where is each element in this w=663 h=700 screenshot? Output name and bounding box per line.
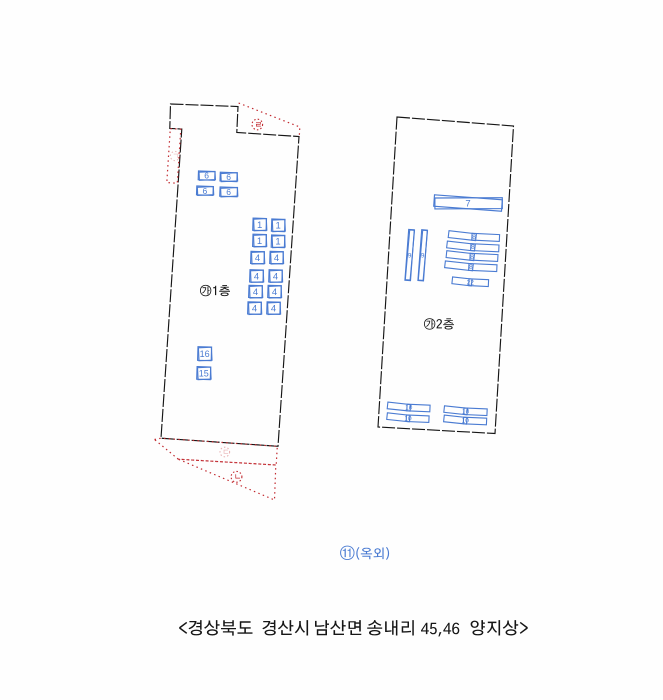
svg-text:1: 1 bbox=[276, 221, 281, 232]
svg-text:22: 22 bbox=[467, 279, 475, 286]
svg-text:6: 6 bbox=[204, 171, 209, 181]
svg-text:8: 8 bbox=[471, 244, 475, 251]
svg-text:9: 9 bbox=[408, 252, 412, 259]
svg-text:4: 4 bbox=[253, 287, 258, 298]
svg-text:4: 4 bbox=[272, 287, 277, 298]
svg-text:1: 1 bbox=[257, 236, 262, 247]
svg-text:8: 8 bbox=[469, 264, 473, 271]
svg-text:8: 8 bbox=[472, 234, 476, 241]
svg-text:6: 6 bbox=[226, 172, 231, 182]
svg-text:10: 10 bbox=[405, 405, 413, 412]
svg-text:1: 1 bbox=[275, 237, 280, 248]
svg-text:6: 6 bbox=[226, 187, 231, 197]
svg-text:1: 1 bbox=[257, 220, 262, 231]
svg-text:8: 8 bbox=[470, 254, 474, 261]
svg-text:15: 15 bbox=[199, 368, 209, 378]
svg-text:4: 4 bbox=[273, 271, 278, 282]
svg-text:7: 7 bbox=[465, 198, 470, 209]
svg-text:10: 10 bbox=[462, 418, 470, 425]
svg-text:16: 16 bbox=[200, 349, 210, 359]
svg-text:4: 4 bbox=[274, 253, 279, 264]
svg-text:10: 10 bbox=[462, 408, 470, 415]
svg-text:4: 4 bbox=[254, 271, 259, 282]
svg-text:4: 4 bbox=[271, 304, 276, 315]
svg-text:6: 6 bbox=[203, 186, 208, 196]
svg-text:4: 4 bbox=[255, 253, 260, 264]
svg-text:4: 4 bbox=[252, 304, 257, 315]
svg-text:10: 10 bbox=[404, 415, 412, 422]
svg-text:9: 9 bbox=[421, 253, 425, 260]
